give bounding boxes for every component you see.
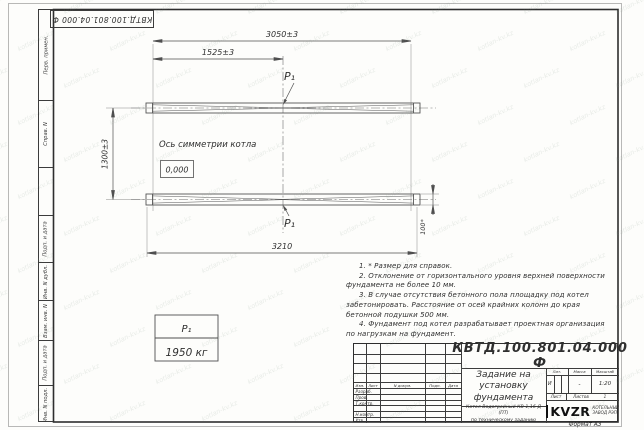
format-label: Формат А3 — [552, 422, 618, 428]
drawing-sheet: 3050±3 1525±3 1300±3 3210 100* P₁ P₁ Ось… — [0, 0, 644, 430]
rotated-doc-number-stamp: КВТД.100.801.04.000 Ф — [50, 10, 154, 28]
tb-col-list: Лист — [366, 382, 380, 388]
margin-cell-label: Инв. N подл. — [43, 387, 49, 421]
dim-3210-label: 3210 — [272, 242, 292, 251]
elevation-value: 0,000 — [166, 166, 189, 175]
load-point-top-label: P₁ — [284, 70, 295, 83]
drawing-title-line: установку — [479, 381, 528, 393]
kvzr-caption-line: ЗАВОД РЭП — [592, 411, 619, 416]
load-point-bottom: P₁ — [283, 205, 295, 230]
kvzr-coil-icon — [546, 405, 548, 418]
margin-cell — [39, 168, 53, 216]
margin-cell-label: Инв. N дубл. — [43, 265, 49, 299]
drawing-title: Задание на установку фундамента — [461, 368, 546, 406]
tb-col-izm: Изм. — [354, 382, 366, 388]
lit-header: Лит. — [546, 368, 568, 375]
elevation-mark: 0,000 — [161, 161, 194, 178]
kvzr-logo-caption: КОТЕЛЬНЫЙ ЗАВОД РЭП — [592, 406, 619, 415]
dim-3050-label: 3050±3 — [266, 30, 298, 39]
scale-value: 1:20 — [591, 375, 619, 393]
tb-row-utv: Утв. — [356, 418, 365, 423]
dim-100-label: 100* — [419, 218, 427, 234]
load-table: P₁ 1950 кг — [155, 315, 218, 361]
load-point-bottom-label: P₁ — [284, 217, 295, 230]
extension-lines — [106, 44, 439, 257]
margin-cell-label: Справ. N — [43, 122, 49, 146]
product-designation: Котел Водогрейный КВ-1,16 Д (ПТ) по техн… — [461, 406, 546, 423]
drawing-title-line: Задание на — [476, 370, 531, 382]
tb-row-tkontr: Т.контр. — [356, 401, 374, 406]
kvzr-logo-text: KVZR — [550, 404, 590, 419]
dim-1525-label: 1525±3 — [202, 48, 234, 57]
tb-row-prov: Пров. — [356, 395, 368, 400]
margin-cell-label: Подп. и дата — [43, 221, 49, 256]
rotated-doc-number: КВТД.100.801.04.000 Ф — [52, 15, 152, 24]
margin-cell: Справ. N — [39, 101, 53, 168]
drawing-title-line: фундамента — [474, 393, 534, 405]
margin-cell: Взам. инв. N — [39, 301, 53, 341]
sheets-value: 1 — [598, 393, 612, 400]
mass-value: - — [568, 375, 591, 393]
note-item: 1. * Размер для справок. — [346, 262, 614, 272]
load-table-name: P₁ — [181, 324, 191, 335]
dim-1300-label: 1300±3 — [101, 139, 110, 169]
load-point-top: P₁ — [283, 70, 295, 105]
margin-cell-label: Взам. инв. N — [43, 304, 49, 338]
title-block: Изм. Лист N докум. Подп. Дата Разраб. Пр… — [353, 343, 618, 422]
tb-col-docnum: N докум. — [380, 382, 425, 388]
note-item: 4. Фундамент под котел разрабатывает про… — [346, 320, 614, 339]
margin-cell: Подп. и дата — [39, 216, 53, 263]
margin-strip: Перв. примен. Справ. N Подп. и дата Инв.… — [38, 9, 53, 422]
tb-row-nkontr: Н.контр. — [356, 412, 375, 417]
lit-value: И — [546, 375, 554, 393]
symmetry-axis-label: Ось симметрии котла — [159, 140, 256, 150]
note-item: 2. Отклонение от горизонтального уровня … — [346, 272, 614, 291]
tb-col-podp: Подп. — [425, 382, 445, 388]
notes-block: 1. * Размер для справок. 2. Отклонение о… — [346, 262, 614, 340]
margin-cell: Инв. N подл. — [39, 386, 53, 423]
doc-number: КВТД.100.801.04.000 Ф — [461, 344, 619, 368]
sheet-label: Лист — [546, 393, 566, 400]
sheets-label: Листов — [568, 393, 594, 400]
load-table-value: 1950 кг — [166, 347, 208, 359]
product-designation-line: Котел Водогрейный КВ-1,16 Д (ПТ) — [461, 405, 546, 417]
mass-header: Масса — [568, 368, 591, 375]
margin-cell: Инв. N дубл. — [39, 263, 53, 301]
margin-cell-label: Перв. примен. — [43, 36, 49, 75]
tb-row-razrab: Разраб. — [356, 389, 372, 394]
margin-cell: Подп. и дата — [39, 341, 53, 386]
product-designation-line: по техническому заданию — [471, 418, 536, 424]
note-item: 3. В случае отсутствия бетонного пола пл… — [346, 291, 614, 320]
tb-col-data: Дата — [445, 382, 461, 388]
scale-header: Масштаб — [591, 368, 619, 375]
margin-cell-label: Подп. и дата — [43, 345, 49, 380]
company-logo: KVZR КОТЕЛЬНЫЙ ЗАВОД РЭП — [546, 400, 619, 422]
